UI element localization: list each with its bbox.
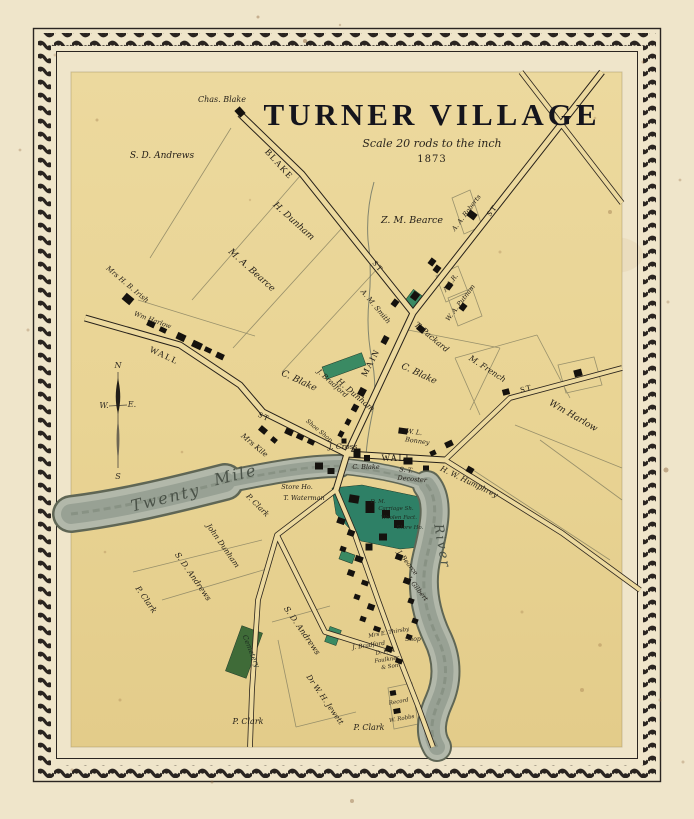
landmark-label: D. M. [369,499,385,505]
map-title: TURNER VILLAGE [263,97,600,132]
landmark-label: Store Ho. [397,525,424,531]
map-scale-note: Scale 20 rods to the inch [362,137,501,150]
map-sheet [71,72,622,747]
frame-ornate-bottom [38,765,656,778]
name-label: J. Cross [327,442,358,451]
building [364,455,370,461]
name-label: S. D. Andrews [130,151,195,161]
landmark-label: Woolen Fact. [381,515,417,521]
name-label: Z. M. Bearce [380,215,443,226]
map-year: 1873 [417,154,446,165]
name-label: Shop [405,636,421,643]
building [315,463,323,470]
landmark-label: Carriage Sh. [378,506,414,512]
name-label: C. Blake [352,463,380,471]
frame-ornate-top [38,33,656,46]
frame-ornate-left [38,33,51,778]
street-label: WALL [382,453,413,463]
building [379,534,387,541]
compass-n: N [114,361,123,370]
name-label: Store Ho. [281,483,313,491]
building [390,690,397,696]
building [348,494,359,504]
name-label: T. Waterman [283,494,324,502]
building [366,544,373,551]
name-label: P. Clark [232,717,264,726]
compass-e: E. [127,400,136,409]
turner-village-map: N S W. E. TURNER VILLAGE Scale 20 rods t… [0,0,694,819]
compass-s: S [115,472,121,481]
building [423,466,429,471]
compass-w: W. [99,401,108,410]
name-label: Chas. Blake [198,95,246,104]
frame-ornate-right [643,33,656,778]
building [328,468,335,474]
name-label: P. Clark [353,723,385,732]
map-page: N S W. E. TURNER VILLAGE Scale 20 rods t… [0,0,694,819]
